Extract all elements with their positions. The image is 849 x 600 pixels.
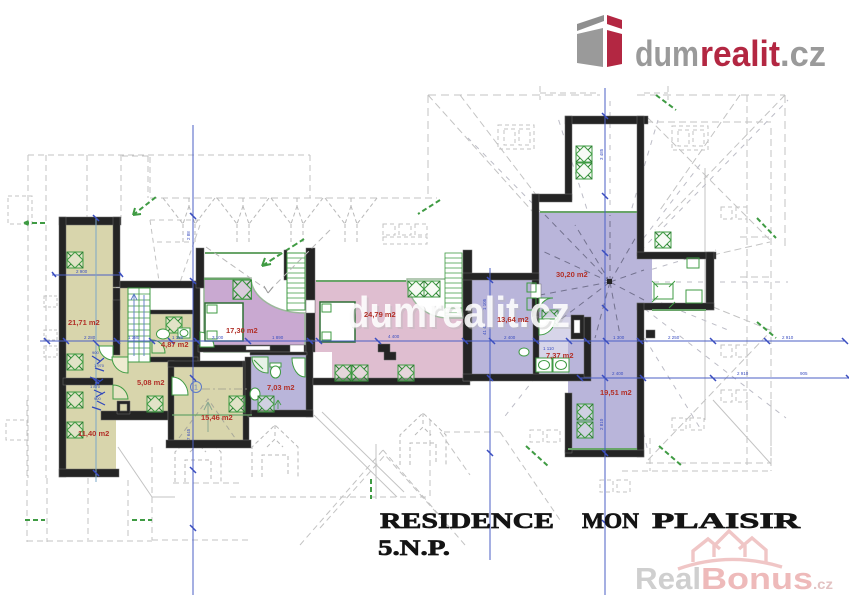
svg-text:19,51 m2: 19,51 m2	[600, 388, 632, 397]
svg-text:2 88: 2 88	[186, 231, 191, 240]
svg-text:11,40 m2: 11,40 m2	[78, 429, 109, 438]
svg-text:905: 905	[800, 371, 808, 376]
svg-text:5.N.P.: 5.N.P.	[378, 535, 450, 560]
svg-text:RESIDENCE: RESIDENCE	[380, 508, 554, 533]
svg-text:7,37 m2: 7,37 m2	[546, 351, 574, 360]
svg-text:1 105: 1 105	[482, 298, 487, 310]
svg-text:3 100: 3 100	[212, 335, 224, 340]
svg-text:21,71 m2: 21,71 m2	[68, 318, 100, 327]
svg-text:.cz: .cz	[780, 33, 826, 74]
svg-text:1 300: 1 300	[613, 335, 625, 340]
svg-text:2 810: 2 810	[599, 418, 604, 430]
svg-text:13,64 m2: 13,64 m2	[497, 315, 529, 324]
svg-text:17,30 m2: 17,30 m2	[226, 326, 258, 335]
svg-text:dum: dum	[635, 33, 699, 74]
svg-text:4,87 m2: 4,87 m2	[161, 340, 189, 349]
svg-text:2 900: 2 900	[76, 269, 88, 274]
svg-text:41 4: 41 4	[482, 326, 487, 335]
svg-text:24,79 m2: 24,79 m2	[364, 310, 396, 319]
svg-text:Bonus: Bonus	[701, 561, 813, 596]
svg-text:900: 900	[92, 350, 99, 355]
svg-text:1 870: 1 870	[90, 384, 101, 389]
svg-text:PLAISIR: PLAISIR	[652, 508, 802, 533]
svg-text:2 400: 2 400	[612, 371, 624, 376]
svg-text:Real: Real	[635, 561, 701, 596]
svg-text:1 890: 1 890	[272, 335, 284, 340]
svg-text:2 910: 2 910	[782, 335, 794, 340]
svg-text:realit: realit	[700, 33, 780, 74]
svg-text:15,46 m2: 15,46 m2	[201, 413, 233, 422]
svg-text:900: 900	[94, 396, 101, 401]
svg-text:4 400: 4 400	[388, 334, 400, 339]
svg-text:5,08 m2: 5,08 m2	[137, 378, 165, 387]
svg-text:7 645: 7 645	[186, 428, 191, 440]
svg-text:MON: MON	[582, 508, 639, 533]
svg-text:2 910: 2 910	[737, 371, 749, 376]
svg-text:30,20 m2: 30,20 m2	[556, 270, 588, 279]
svg-text:3 485: 3 485	[599, 148, 604, 160]
svg-text:2 400: 2 400	[504, 335, 516, 340]
svg-text:.cz: .cz	[813, 576, 833, 592]
svg-text:1 380: 1 380	[128, 335, 140, 340]
svg-text:1: 1	[194, 385, 198, 392]
svg-text:2 280: 2 280	[84, 335, 96, 340]
svg-text:2 250: 2 250	[668, 335, 680, 340]
svg-text:7,03 m2: 7,03 m2	[267, 383, 295, 392]
svg-text:1 970: 1 970	[94, 363, 105, 368]
